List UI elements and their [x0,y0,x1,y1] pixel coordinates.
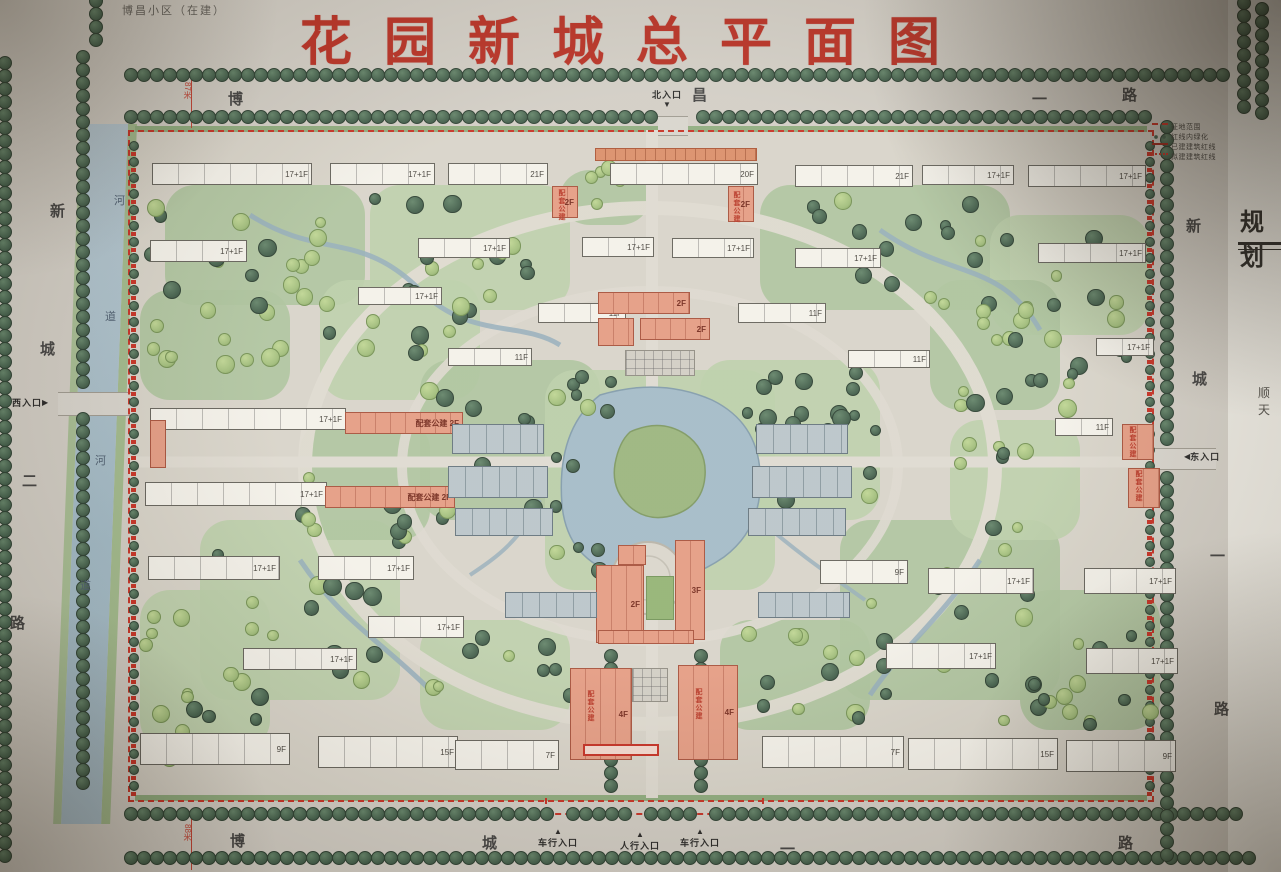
tree-light [849,650,864,665]
tree-dark [1160,783,1174,797]
adjacent-parcel-label: 博昌小区（在建） [122,2,226,18]
tree-dark [1160,393,1174,407]
entrance-arrow-icon: ▲ [636,831,644,839]
tree-light [503,650,515,662]
tree-dark [1047,68,1061,82]
tree-dark [332,807,346,821]
tree-dark [1160,341,1174,355]
tree-dark [800,807,814,821]
tree-dark [129,717,139,727]
building-11F: 11F [738,303,826,323]
tree-dark [852,224,868,240]
tree-dark [129,317,139,327]
tree-dark [1255,15,1269,29]
boundary-red-mark [1147,696,1152,700]
boundary-red-mark [131,184,136,188]
tree-light [218,333,231,346]
tree-dark [1145,317,1155,327]
legend-label: 拟建建筑红线 [1171,152,1216,162]
tree-dark [129,189,139,199]
tree-dark [241,807,255,821]
tree-dark [254,110,268,124]
tree-dark [358,110,372,124]
building [598,630,694,644]
tree-dark [605,110,619,124]
building-21F: 21F [795,165,913,187]
tree-dark [1034,807,1048,821]
tree-dark [129,413,139,423]
boundary-red-mark [1147,312,1152,316]
tree-light [173,609,190,626]
tree-dark [129,733,139,743]
building-label: 17+1F [384,564,413,573]
dimension-text: 88米 [182,824,193,841]
tree-dark [189,807,203,821]
building-2F: 2F [598,292,690,314]
boundary-red-mark [131,360,136,364]
tree-light [823,645,838,660]
tree-dark [694,649,708,663]
river-label: 河 [114,192,125,208]
tree-dark [443,195,461,213]
tree-dark [228,110,242,124]
building-label: 17+1F [966,652,995,661]
tree-dark [76,685,90,699]
tree-dark [1255,41,1269,55]
tree-dark [1112,110,1126,124]
tree-dark [1126,630,1138,642]
tree-dark [449,807,463,821]
tree-dark [254,851,268,865]
tree-dark [332,110,346,124]
tree-dark [722,110,736,124]
tree-light [1015,608,1033,626]
tree-dark [1160,705,1174,719]
tree-dark [904,807,918,821]
tree-dark [241,68,255,82]
tree-dark [76,646,90,660]
building-17+1F: 17+1F [582,237,654,257]
building-17+1F: 17+1F [243,648,357,670]
boundary-red-mark [131,328,136,332]
tree-dark [89,20,103,34]
tree-dark [1216,68,1230,82]
tree-dark [293,851,307,865]
tree-dark [129,237,139,247]
tree-dark [591,543,605,557]
tree-dark [76,258,90,272]
boundary-red-mark [131,200,136,204]
building-17+1F: 17+1F [418,238,510,258]
entrance-label: 东入口 [1190,450,1220,463]
tree-dark [475,110,489,124]
tree-light [1017,443,1034,460]
entrance-e: ◀东入口 [1184,450,1220,463]
boundary-red-mark [131,584,136,588]
boundary-red-mark [131,376,136,380]
tree-dark [76,362,90,376]
building-17+1F: 17+1F [672,238,754,258]
tree-dark [129,557,139,567]
boundary-red-mark [1147,408,1152,412]
building-label: 17+1F [1146,577,1175,586]
tree-dark [694,779,708,793]
tree-dark [129,253,139,263]
tree-dark [76,232,90,246]
tree-dark [1021,110,1035,124]
building-17+1F: 17+1F [152,163,312,185]
tree-dark [76,438,90,452]
boundary-red-mark [1147,248,1152,252]
legend: 征地范围 红线内绿化 已建建筑红线 拟建建筑红线 [1152,122,1252,162]
tree-light [286,258,300,272]
tree-dark [579,851,593,865]
tree-dark [410,807,424,821]
tree-dark [76,737,90,751]
tree-dark [250,713,263,726]
tree-dark [129,285,139,295]
tree-dark [1008,68,1022,82]
tree-dark [735,110,749,124]
tree-dark [1255,2,1269,16]
tree-dark [76,115,90,129]
tree-dark [89,33,103,47]
boundary-red-mark [131,248,136,252]
public-building-label: 配套公建 [731,191,741,223]
building [583,744,659,756]
tree-dark [696,110,710,124]
tree-dark [1145,637,1155,647]
tree-dark [1145,621,1155,631]
tree-light [1018,302,1035,319]
tree-dark [228,68,242,82]
tree-dark [475,807,489,821]
tree-dark [1229,851,1243,865]
tree-dark [76,128,90,142]
tree-dark [1160,315,1174,329]
building [646,576,674,620]
tree-dark [163,851,177,865]
building-9F: 9F [140,733,290,765]
tree-dark [202,110,216,124]
tree-dark [575,370,589,384]
tree-light [975,235,986,246]
tree-dark [969,851,983,865]
tree-dark [1000,233,1014,247]
boundary-red-mark [131,152,136,156]
tree-dark [839,851,853,865]
building-label: 7F [543,751,558,760]
tree-dark [449,110,463,124]
tree-dark [76,63,90,77]
tree-dark [1034,68,1048,82]
tree-dark [1160,406,1174,420]
tree-dark [371,110,385,124]
tree-dark [1145,285,1155,295]
boundary-red-mark [131,232,136,236]
tree-dark [228,807,242,821]
tree-dark [748,851,762,865]
tree-dark [129,141,139,151]
tree-dark [137,807,151,821]
tree-dark [76,193,90,207]
tree-dark [1160,549,1174,563]
tree-dark [1083,718,1096,731]
tree-dark [1125,110,1139,124]
tree-dark [124,110,138,124]
tree-dark [982,110,996,124]
tree-dark [1145,189,1155,199]
tree-dark [1160,627,1174,641]
building [452,424,544,454]
building-label: 4F [616,710,631,719]
tree-dark [1160,185,1174,199]
tree-dark [722,807,736,821]
tree-dark [488,851,502,865]
boundary-red-mark [1147,552,1152,556]
tree-dark [514,807,528,821]
tree-dark [1099,851,1113,865]
tree-dark [76,206,90,220]
tree-dark [967,252,983,268]
tree-dark [592,851,606,865]
boundary-red-mark [1147,632,1152,636]
building-15F: 15F [318,736,458,768]
boundary-red-mark [1147,680,1152,684]
building-label: 2F [694,325,709,334]
boundary-red-mark [131,600,136,604]
building [505,592,597,618]
legend-row: 红线内绿化 [1152,132,1252,142]
tree-dark [1145,237,1155,247]
tree-dark [189,851,203,865]
entrance-label: 车行入口 [538,836,578,849]
tree-dark [855,267,872,284]
tree-dark [865,851,879,865]
building-label: 17+1F [1116,249,1145,258]
tree-dark [1145,253,1155,263]
tree-light [245,622,259,636]
tree-light [1062,704,1078,720]
tree-dark [76,750,90,764]
public-building-label: 配套公建 [693,688,703,720]
tree-dark [878,807,892,821]
tree-light [483,289,497,303]
building-label: 17+1F [984,171,1013,180]
road-label: 路 [1118,832,1133,853]
tree-dark [76,464,90,478]
tree-dark [384,110,398,124]
tree-dark [89,7,103,21]
tree-dark [371,851,385,865]
tree-dark [150,110,164,124]
entrance-label: 人行入口 [620,839,660,852]
tree-dark [694,766,708,780]
tree-dark [1160,536,1174,550]
tree-dark [76,245,90,259]
boundary-red-mark [131,680,136,684]
tree-dark [1008,332,1023,347]
tree-dark [129,541,139,551]
tree-dark [129,637,139,647]
tree-dark [129,509,139,519]
building-3F: 3F [675,540,705,640]
tree-dark [604,649,618,663]
tree-dark [1099,807,1113,821]
tree-dark [683,807,697,821]
tree-dark [722,851,736,865]
tree-dark [129,381,139,391]
tree-dark [1145,781,1155,791]
tree-dark [966,394,985,413]
tree-dark [1160,198,1174,212]
tree-dark [323,577,342,596]
tree-dark [76,711,90,725]
tree-dark [1164,68,1178,82]
tree-dark [436,110,450,124]
tree-dark [941,226,955,240]
boundary-red-mark [131,264,136,268]
tree-dark [1160,172,1174,186]
tree-dark [1145,525,1155,535]
tree-dark [644,110,658,124]
tree-light [301,512,316,527]
tree-dark [1145,397,1155,407]
tree-dark [76,425,90,439]
tree-dark [76,76,90,90]
tree-dark [865,807,879,821]
tree-light [741,626,757,642]
tree-dark [129,205,139,215]
tree-dark [1160,718,1174,732]
entrance-n: 北入口▼ [652,88,682,109]
tree-dark [423,851,437,865]
tree-dark [397,851,411,865]
tree-dark [592,110,606,124]
tree-dark [1237,22,1251,36]
tree-light [580,399,596,415]
tree-dark [488,807,502,821]
boundary-red-mark [131,712,136,716]
boundary-red-mark [1147,616,1152,620]
boundary-red-mark [1147,296,1152,300]
tree-dark [1112,68,1126,82]
building-17+1F: 17+1F [795,248,881,268]
tree-dark [1047,851,1061,865]
tree-dark [251,688,269,706]
tree-dark [891,807,905,821]
building-label: 4F [722,708,737,717]
boundary-red-mark [1147,360,1152,364]
tree-light [591,198,603,210]
boundary-red-mark [1147,232,1152,236]
tree-dark [129,349,139,359]
tree-light [549,545,564,560]
building-label: 配套公建 2F [404,492,454,503]
tree-dark [124,851,138,865]
tree-dark [839,807,853,821]
tree-dark [129,301,139,311]
building-17+1F: 17+1F [928,568,1034,594]
building [618,545,646,565]
building-label: 17+1F [217,247,246,256]
tree-dark [1151,68,1165,82]
tree-dark [579,110,593,124]
building [150,420,166,468]
tree-dark [1229,807,1243,821]
tree-dark [1160,276,1174,290]
tree-dark [384,851,398,865]
tree-dark [129,445,139,455]
tree-dark [1145,413,1155,423]
tree-dark [129,525,139,535]
road-label: 一 [780,838,795,859]
tree-dark [129,429,139,439]
tree-dark [176,110,190,124]
tree-dark [1177,851,1191,865]
tree-dark [1073,110,1087,124]
entrance-s: ▲人行入口 [620,831,660,852]
entrance-arrow-icon: ▼ [663,101,671,109]
tree-dark [1047,110,1061,124]
tree-dark [129,365,139,375]
tree-dark [1021,851,1035,865]
public-building-label: 配套公建 [1133,470,1143,502]
building-17+1F: 17+1F [1084,568,1176,594]
tree-light [998,543,1012,557]
tree-dark [129,397,139,407]
tree-dark [878,110,892,124]
tree-dark [1073,807,1087,821]
tree-dark [1073,851,1087,865]
building-label: 11F [1093,423,1112,432]
tree-dark [985,673,1000,688]
tree-dark [76,167,90,181]
tree-dark [254,68,268,82]
tree-dark [537,664,550,677]
building-17+1F: 17+1F [318,556,414,580]
building-17+1F: 17+1F [330,163,435,185]
tree-dark [985,520,1001,536]
tree-dark [1047,298,1061,312]
tree-dark [839,110,853,124]
tree-dark [904,110,918,124]
tree-light [1109,295,1123,309]
building-label: 17+1F [250,564,279,573]
tree-dark [1145,381,1155,391]
tree-dark [129,573,139,583]
tree-dark [76,180,90,194]
boundary-red-mark [131,520,136,524]
tree-dark [618,807,632,821]
tree-dark [618,110,632,124]
tree-dark [748,110,762,124]
building-17+1F: 17+1F [150,408,346,430]
tree-dark [129,461,139,471]
tree-dark [323,326,336,339]
tree-dark [423,110,437,124]
road-label: 城 [482,832,497,853]
tree-dark [76,375,90,389]
boundary-red-mark [131,728,136,732]
tree-dark [189,110,203,124]
building-label: 7F [888,748,903,757]
tree-dark [76,349,90,363]
tree-light [165,351,177,363]
tree-dark [865,110,879,124]
tree-dark [604,766,618,780]
tree-dark [76,451,90,465]
